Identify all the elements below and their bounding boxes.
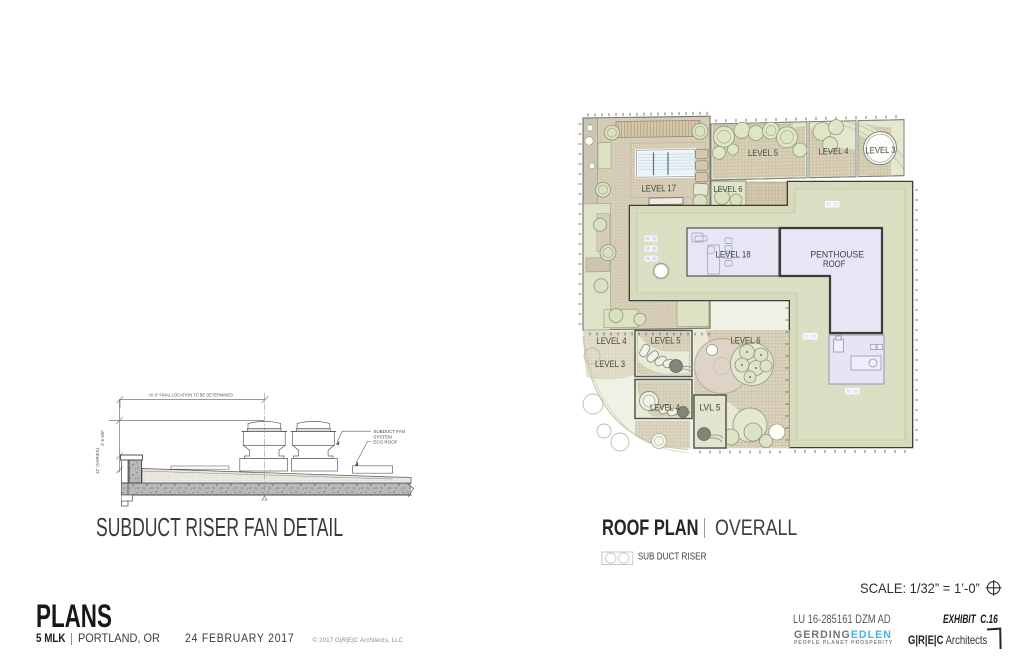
svg-text:LEVEL 3: LEVEL 3 bbox=[595, 359, 625, 369]
svg-text:LEVEL 4: LEVEL 4 bbox=[650, 403, 680, 413]
svg-text:LEVEL 4: LEVEL 4 bbox=[819, 146, 849, 157]
svg-text:LEVEL 6: LEVEL 6 bbox=[731, 336, 761, 346]
svg-text:LEVEL 6: LEVEL 6 bbox=[714, 184, 743, 194]
svg-text:LEVEL 5: LEVEL 5 bbox=[748, 147, 778, 158]
svg-text:ECO ROOF: ECO ROOF bbox=[373, 439, 397, 444]
svg-text:2'-6 5/8": 2'-6 5/8" bbox=[100, 429, 105, 446]
svg-text:LEVEL 5: LEVEL 5 bbox=[651, 336, 681, 346]
svg-text:SUB DUCT RISER: SUB DUCT RISER bbox=[638, 552, 707, 563]
svg-text:LEVEL 18: LEVEL 18 bbox=[716, 250, 751, 261]
svg-text:ROOF: ROOF bbox=[823, 259, 846, 270]
svg-text:~8'-0" FINAL LOCATION TO BE DE: ~8'-0" FINAL LOCATION TO BE DETERMINED bbox=[148, 393, 234, 398]
svg-text:11" (VARIES): 11" (VARIES) bbox=[95, 447, 100, 474]
svg-text:LEVEL 3: LEVEL 3 bbox=[866, 145, 896, 156]
svg-text:LEVEL 4: LEVEL 4 bbox=[597, 336, 627, 346]
svg-text:LEVEL 17: LEVEL 17 bbox=[642, 183, 677, 194]
svg-text:LVL 5: LVL 5 bbox=[700, 403, 721, 413]
